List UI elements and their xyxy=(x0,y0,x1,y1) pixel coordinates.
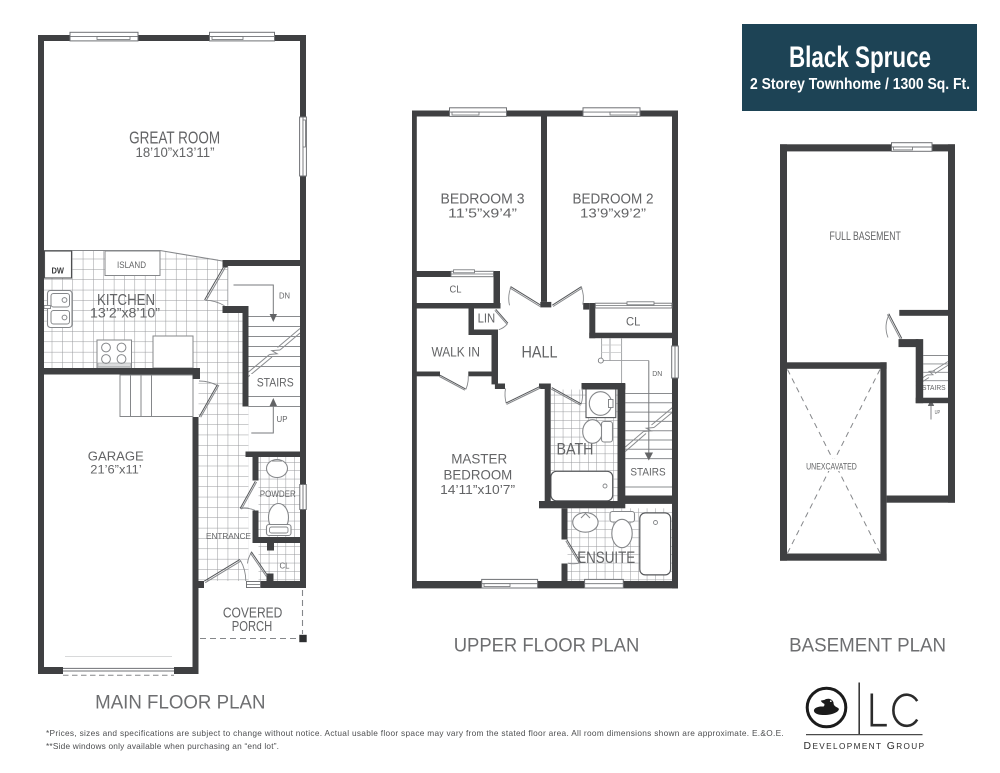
svg-text:*Prices, sizes and specificati: *Prices, sizes and specifications are su… xyxy=(46,728,784,738)
svg-text:14’11”x10’7”: 14’11”x10’7” xyxy=(440,482,515,497)
svg-text:CL: CL xyxy=(280,562,291,571)
svg-text:PORCH: PORCH xyxy=(232,619,273,635)
svg-text:CL: CL xyxy=(626,315,641,329)
svg-text:ENTRANCE: ENTRANCE xyxy=(206,531,251,541)
svg-text:POWDER: POWDER xyxy=(260,489,296,499)
svg-text:GARAGE: GARAGE xyxy=(88,449,144,464)
svg-text:DN: DN xyxy=(279,291,290,301)
svg-text:CL: CL xyxy=(450,283,462,295)
svg-text:UNEXCAVATED: UNEXCAVATED xyxy=(806,461,857,471)
svg-text:STAIRS: STAIRS xyxy=(257,377,294,390)
svg-text:BEDROOM: BEDROOM xyxy=(444,467,513,483)
svg-text:UP: UP xyxy=(935,410,941,416)
svg-text:DN: DN xyxy=(652,369,662,378)
svg-text:MAIN FLOOR PLAN: MAIN FLOOR PLAN xyxy=(95,692,265,714)
svg-text:STAIRS: STAIRS xyxy=(630,466,666,478)
svg-text:HALL: HALL xyxy=(522,344,558,362)
svg-text:2 Storey Townhome / 1300 Sq. F: 2 Storey Townhome / 1300 Sq. Ft. xyxy=(750,76,970,93)
svg-text:ISLAND: ISLAND xyxy=(117,259,146,270)
svg-text:11’5”x9’4”: 11’5”x9’4” xyxy=(448,206,517,221)
svg-text:LIN: LIN xyxy=(478,311,496,326)
svg-text:UPPER FLOOR PLAN: UPPER FLOOR PLAN xyxy=(454,635,640,657)
svg-text:MASTER: MASTER xyxy=(451,451,507,467)
svg-text:DEVELOPMENT GROUP: DEVELOPMENT GROUP xyxy=(804,741,926,752)
svg-text:BASEMENT PLAN: BASEMENT PLAN xyxy=(789,635,946,657)
svg-text:21’6”x11’: 21’6”x11’ xyxy=(90,463,142,477)
svg-text:13’9”x9’2”: 13’9”x9’2” xyxy=(580,206,646,221)
svg-text:WALK IN: WALK IN xyxy=(431,345,480,360)
svg-text:18’10”x13’11”: 18’10”x13’11” xyxy=(136,145,215,160)
svg-text:DW: DW xyxy=(51,267,64,276)
svg-text:13’2”x8’10”: 13’2”x8’10” xyxy=(90,306,160,321)
svg-text:BATH: BATH xyxy=(557,441,594,459)
svg-text:ENSUITE: ENSUITE xyxy=(577,549,635,567)
svg-text:Black Spruce: Black Spruce xyxy=(789,41,931,74)
svg-text:STAIRS: STAIRS xyxy=(922,383,946,392)
svg-text:FULL BASEMENT: FULL BASEMENT xyxy=(830,229,902,243)
svg-text:**Side windows only available: **Side windows only available when purch… xyxy=(46,741,279,751)
svg-text:UP: UP xyxy=(277,414,288,424)
